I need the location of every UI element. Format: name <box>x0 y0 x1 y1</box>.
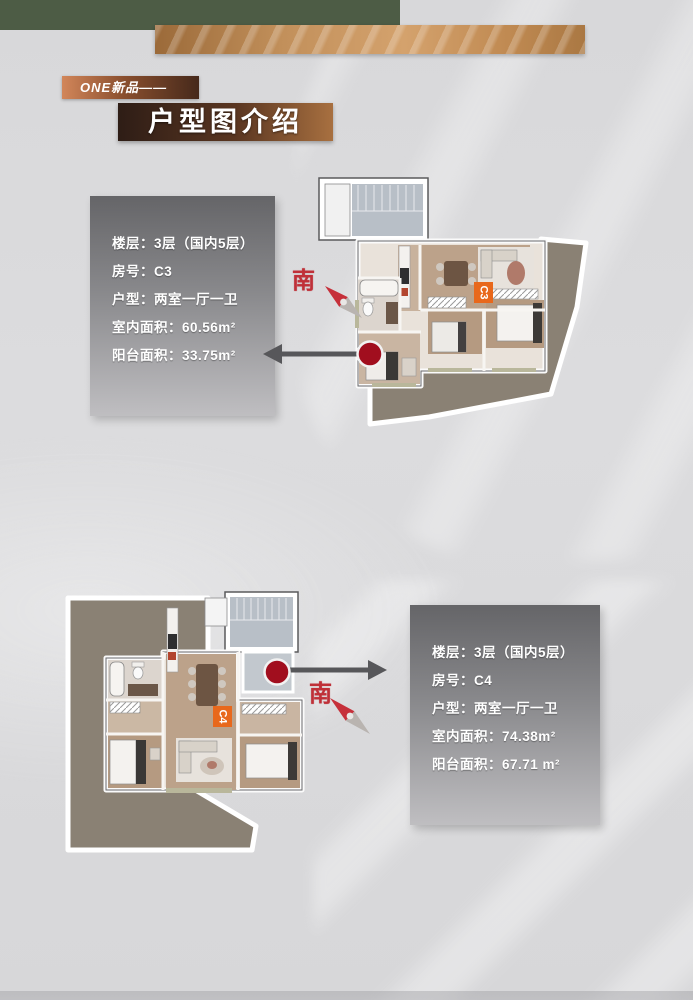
info-card-c4: 楼层：3层（国内5层） 房号：C4 户型：两室一厅一卫 室内面积：74.38m²… <box>410 605 600 825</box>
page-title: 户型图介绍 <box>118 103 333 141</box>
c4-kitchen-counter <box>167 608 178 672</box>
eyebrow-label: ONE新品—— <box>62 76 199 99</box>
bottom-edge-strip <box>0 991 693 1000</box>
c4-balcony-sill <box>166 788 232 793</box>
c3-room-number-row: 房号：C3 <box>112 258 275 286</box>
c4-room-number-row: 房号：C4 <box>432 667 600 695</box>
c4-south-seal-icon: 南 <box>309 682 332 705</box>
floorplan-c3: C3 <box>300 168 592 460</box>
c4-hall-wardrobe <box>110 702 140 713</box>
c3-floor-row: 楼层：3层（国内5层） <box>112 230 275 258</box>
c3-bed-mid <box>432 322 466 352</box>
c4-badge: C4 <box>213 706 232 727</box>
c3-indoor-area-row: 室内面积：60.56m² <box>112 314 275 342</box>
poster-page: ONE新品—— 户型图介绍 楼层：3层（国内5层） 房号：C3 户型：两室一厅一… <box>0 0 693 1000</box>
c3-stairwell <box>319 178 428 240</box>
c4-badge-label: C4 <box>217 709 229 724</box>
c3-badge-label: C3 <box>478 285 490 299</box>
c3-badge: C3 <box>474 282 493 303</box>
c4-layout-row: 户型：两室一厅一卫 <box>432 695 600 723</box>
floorplan-c4: C4 <box>58 585 340 863</box>
c4-sofa <box>176 738 232 782</box>
c3-balcony-area-row: 阳台面积：33.75m² <box>112 342 275 370</box>
c4-balcony-area-row: 阳台面积：67.71 m² <box>432 751 600 779</box>
c3-layout-row: 户型：两室一厅一卫 <box>112 286 275 314</box>
info-card-c3: 楼层：3层（国内5层） 房号：C3 户型：两室一厅一卫 室内面积：60.56m²… <box>90 196 275 416</box>
c4-floor-row: 楼层：3层（国内5层） <box>432 639 600 667</box>
c3-south-seal-icon: 南 <box>292 269 315 292</box>
c4-dining-table <box>188 664 226 706</box>
copper-accent-bar <box>155 25 585 54</box>
c4-indoor-area-row: 室内面积：74.38m² <box>432 723 600 751</box>
